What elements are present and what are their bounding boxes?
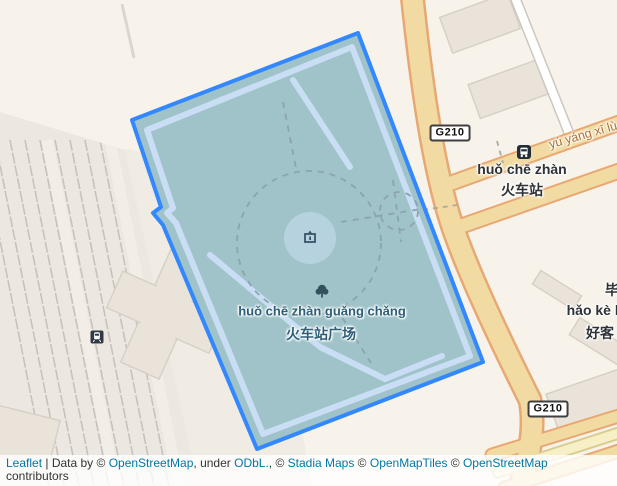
route-badge-g210-top: G210 xyxy=(430,125,471,142)
station-cjk-label: 火车站 xyxy=(501,180,543,200)
route-badge-g210-bottom: G210 xyxy=(528,401,569,418)
attribution-text: , under xyxy=(193,456,234,470)
plaza-pinyin-label: huǒ chē zhàn guǎng chǎng xyxy=(238,304,406,319)
partial-label-top: 毕 xyxy=(605,280,617,300)
partial-pinyin-label: hǎo kè b xyxy=(567,302,617,318)
attribution-text: | Data by © xyxy=(42,456,109,470)
plaza-cjk-label: 火车站广场 xyxy=(286,324,356,344)
bus-stop-icon xyxy=(517,145,531,159)
partial-cjk-label: 好客 xyxy=(586,323,614,343)
openmaptiles-link[interactable]: OpenMapTiles xyxy=(370,456,448,470)
openstreetmap-link[interactable]: OpenStreetMap xyxy=(109,456,194,470)
attribution-bar: Leaflet | Data by © OpenStreetMap, under… xyxy=(0,455,617,486)
leaflet-link[interactable]: Leaflet xyxy=(6,456,42,470)
map-viewport[interactable]: G210 G210 yú yáng xī lù huǒ chē zhàn 火车站… xyxy=(0,0,617,486)
station-pinyin-label: huǒ chē zhàn xyxy=(477,161,566,177)
openstreetmap-contributors-link[interactable]: OpenStreetMap xyxy=(463,456,548,470)
monument-icon xyxy=(302,229,318,245)
odbl-link[interactable]: ODbL. xyxy=(234,456,269,470)
attribution-text: © xyxy=(354,456,370,470)
train-station-icon xyxy=(91,331,104,344)
attribution-text: , © xyxy=(269,456,288,470)
attribution-text: contributors xyxy=(6,469,69,483)
attribution-text: © xyxy=(447,456,463,470)
stadia-maps-link[interactable]: Stadia Maps xyxy=(288,456,355,470)
tree-icon xyxy=(314,283,330,299)
